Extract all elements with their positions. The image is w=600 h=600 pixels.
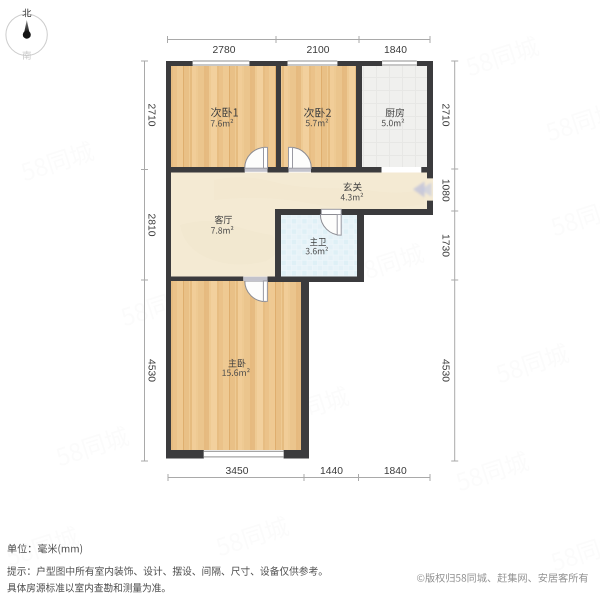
- svg-text:1440: 1440: [320, 466, 343, 477]
- svg-text:2780: 2780: [213, 45, 236, 56]
- svg-text:2710: 2710: [439, 104, 450, 127]
- svg-text:3450: 3450: [226, 466, 249, 477]
- svg-text:4530: 4530: [146, 359, 157, 382]
- svg-text:1840: 1840: [384, 45, 407, 56]
- svg-text:1840: 1840: [384, 466, 407, 477]
- svg-text:1730: 1730: [439, 234, 450, 257]
- svg-text:1080: 1080: [439, 179, 450, 202]
- svg-text:2810: 2810: [146, 214, 157, 237]
- svg-text:2710: 2710: [146, 104, 157, 127]
- svg-text:2100: 2100: [307, 45, 330, 56]
- svg-text:4530: 4530: [439, 359, 450, 382]
